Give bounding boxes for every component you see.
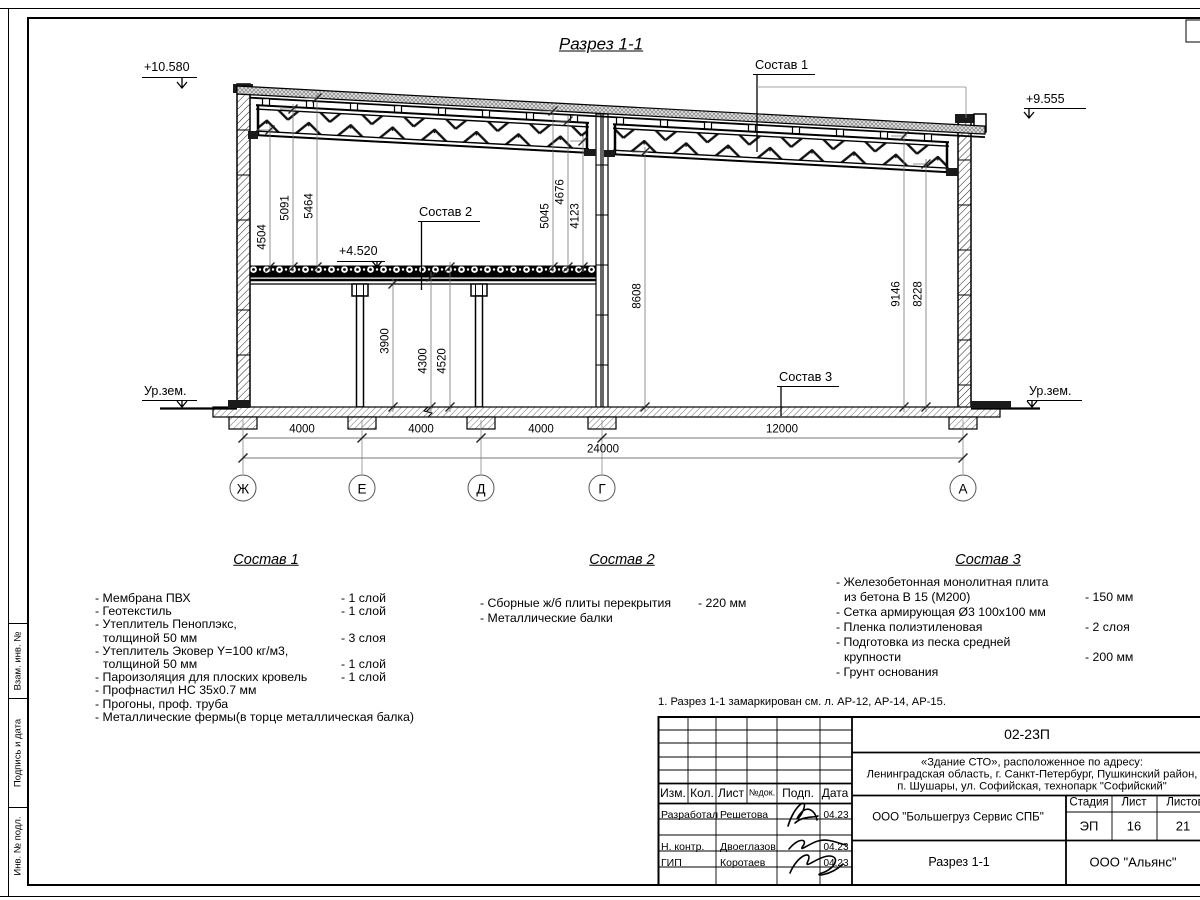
middle-wall (596, 114, 608, 410)
row-date-ncontrol: 04.23 (823, 843, 848, 853)
elevation-slab: +4.520 (339, 245, 378, 258)
spec1-title: Состав 1 (233, 553, 298, 568)
row-role-developer: Разработал (661, 810, 718, 821)
dim-3900: 3900 (380, 328, 392, 354)
dim-9146: 9146 (891, 281, 903, 307)
drawing-sheet: Разрез 1-1 +10.580 +9.555 +4.520 Ур.зем.… (0, 0, 1200, 900)
side-stamp-inv: Инв. № подл. (13, 816, 23, 875)
row-name-ncontrol: Двоеглазов (720, 842, 776, 853)
axis-label-e: Е (357, 482, 366, 496)
dim-8228: 8228 (913, 281, 925, 307)
col-header-kol: Кол. (690, 787, 714, 799)
client-org: ООО "Большегруз Сервис СПБ" (872, 812, 1044, 824)
stage-label: Стадия (1069, 797, 1108, 809)
drawing-name: Разрез 1-1 (928, 856, 989, 869)
dim-5091: 5091 (280, 195, 292, 221)
list-item: - Прогоны, проф. труба (95, 698, 395, 711)
spec3-list: - Железобетонная монолитная плита из бет… (836, 575, 1138, 680)
row-role-ncontrol: Н. контр. (661, 842, 704, 853)
list-item: из бетона В 15 (М200)- 150 мм (836, 590, 1138, 605)
spec3-title: Состав 3 (955, 553, 1020, 568)
column-d (471, 284, 487, 407)
project-address-line2: Ленинградская область, г. Санкт-Петербур… (867, 769, 1198, 780)
right-wall (955, 114, 986, 410)
dim-4520: 4520 (437, 348, 449, 374)
side-stamp-vzam: Взам. инв. № (13, 632, 23, 691)
leader-sostav-2: Состав 2 (419, 206, 472, 219)
list-item: - Утеплитель Пеноплэкс, (95, 618, 395, 631)
axis-label-d: Д (476, 482, 485, 496)
list-item: - Пленка полиэтиленовая- 2 слоя (836, 620, 1138, 635)
design-company: ООО "Альянс" (1090, 856, 1177, 869)
sheet-label: Лист (1122, 797, 1147, 809)
side-stamp-podpis: Подпись и дата (13, 719, 23, 787)
list-item: - Сборные ж/б плиты перекрытия- 220 мм (480, 596, 750, 611)
row-role-gip: ГИП (661, 858, 682, 869)
list-item: - Сетка армирующая Ø3 100х100 мм (836, 605, 1138, 620)
list-item: - Грунт основания (836, 665, 1138, 680)
sheet-number: 16 (1127, 820, 1141, 833)
col-header-ndoc: №док. (749, 789, 775, 798)
dim-5464: 5464 (304, 193, 316, 219)
spec2-list: - Сборные ж/б плиты перекрытия- 220 мм -… (480, 596, 750, 626)
list-item: - Металлические фермы(в торце металличес… (95, 711, 395, 724)
elevation-left-top: +10.580 (144, 61, 190, 74)
row-name-gip: Коротаев (720, 858, 765, 869)
list-item: - Подготовка из песка средней (836, 635, 1138, 650)
leader-sostav-1: Состав 1 (755, 59, 808, 72)
list-item: - Металлические балки (480, 611, 750, 626)
ground-level-left: Ур.зем. (144, 385, 186, 398)
col-header-data: Дата (822, 787, 849, 799)
truss-right-span (604, 124, 958, 176)
project-address-line1: «Здание СТО», расположенное по адресу: (921, 757, 1143, 768)
dim-5045: 5045 (540, 203, 552, 229)
elevation-right-top: +9.555 (1026, 93, 1065, 106)
dim-total: 24000 (587, 445, 619, 457)
project-code: 02-23П (1004, 727, 1050, 741)
list-item: - Железобетонная монолитная плита (836, 575, 1138, 590)
dim-4300: 4300 (418, 348, 430, 374)
project-address-line3: п. Шушары, ул. Софийская, технопарк "Соф… (897, 781, 1167, 792)
spec2-title: Состав 2 (589, 553, 654, 568)
dim-span-3: 4000 (528, 425, 554, 437)
row-date-developer: 04.23 (823, 811, 848, 821)
list-item: крупности- 200 мм (836, 650, 1138, 665)
sheets-label: Листов (1166, 797, 1200, 809)
dim-4123: 4123 (570, 203, 582, 229)
dim-4504: 4504 (257, 224, 269, 250)
ground-level-right: Ур.зем. (1029, 385, 1071, 398)
col-header-podp: Подп. (782, 787, 814, 799)
list-item: - Профнастил НС 35х0.7 мм (95, 684, 395, 697)
dim-8608: 8608 (632, 283, 644, 309)
page-title: Разрез 1-1 (559, 36, 643, 53)
list-item: толщиной 50 мм- 3 слоя (95, 632, 395, 645)
foundations (229, 417, 977, 429)
row-date-gip: 04.23 (823, 859, 848, 869)
dim-span-1: 4000 (289, 425, 315, 437)
axis-label-g: Г (598, 482, 605, 496)
axis-label-zh: Ж (237, 482, 249, 496)
axis-label-a: А (958, 482, 967, 496)
dim-span-2: 4000 (408, 425, 434, 437)
col-header-list: Лист (718, 787, 744, 799)
floor-slab (250, 266, 596, 284)
col-header-izm: Изм. (660, 787, 686, 799)
dim-span-4: 12000 (766, 425, 798, 437)
column-e (352, 284, 368, 407)
sheet-note: 1. Разрез 1-1 замаркирован см. л. АР-12,… (658, 697, 946, 708)
leader-sostav-3: Состав 3 (779, 371, 832, 384)
spec1-list: - Мембрана ПВХ- 1 слой - Геотекстиль- 1 … (95, 592, 395, 724)
dim-4676: 4676 (555, 179, 567, 205)
sheets-total: 21 (1176, 820, 1190, 833)
row-name-developer: Решетова (720, 810, 768, 821)
stage-value: ЭП (1080, 820, 1099, 833)
